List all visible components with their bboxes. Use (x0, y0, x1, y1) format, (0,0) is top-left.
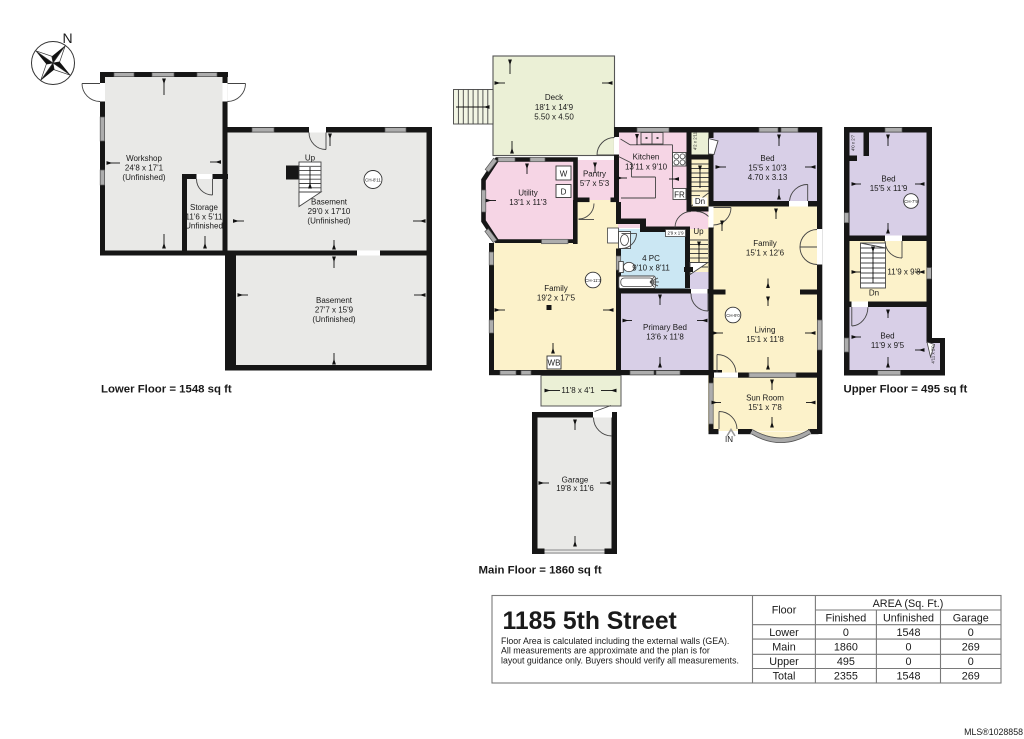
svg-text:Upper Floor = 495 sq ft: Upper Floor = 495 sq ft (844, 384, 968, 396)
svg-text:0: 0 (905, 642, 911, 654)
svg-text:29'0 x 17'10: 29'0 x 17'10 (308, 207, 351, 216)
svg-text:Garage: Garage (953, 612, 989, 624)
svg-text:5'7 x 5'3: 5'7 x 5'3 (580, 179, 610, 188)
svg-text:19'8 x 11'6: 19'8 x 11'6 (556, 484, 594, 493)
svg-text:4'11 x 2'0: 4'11 x 2'0 (931, 345, 936, 364)
svg-text:Lower Floor = 1548 sq ft: Lower Floor = 1548 sq ft (101, 384, 232, 396)
svg-text:1860: 1860 (834, 642, 858, 654)
svg-text:27'7 x 15'9: 27'7 x 15'9 (315, 306, 354, 315)
svg-text:11'8 x 4'1: 11'8 x 4'1 (561, 386, 595, 395)
svg-text:CH-8'11: CH-8'11 (365, 177, 381, 182)
svg-text:Family: Family (753, 239, 777, 248)
svg-text:CH-11'3: CH-11'3 (585, 278, 601, 283)
svg-text:Main: Main (772, 642, 795, 654)
svg-text:1548: 1548 (896, 627, 920, 639)
svg-text:D: D (561, 188, 567, 197)
svg-text:4.70 x 3.13: 4.70 x 3.13 (748, 173, 788, 182)
svg-text:4'0 x 2'7: 4'0 x 2'7 (851, 134, 856, 151)
svg-text:1548: 1548 (896, 671, 920, 683)
svg-text:11'6 x 5'11: 11'6 x 5'11 (185, 213, 223, 222)
svg-text:AREA (Sq. Ft.): AREA (Sq. Ft.) (873, 598, 944, 610)
svg-text:Dn: Dn (695, 197, 705, 206)
svg-text:Unfinished: Unfinished (883, 612, 934, 624)
svg-text:Basement: Basement (311, 198, 348, 207)
svg-text:(Unfinished): (Unfinished) (312, 315, 355, 324)
svg-text:Total: Total (773, 671, 796, 683)
svg-text:Sun Room: Sun Room (746, 394, 784, 403)
svg-text:15'1 x 12'6: 15'1 x 12'6 (746, 249, 785, 258)
svg-text:Main Floor = 1860 sq ft: Main Floor = 1860 sq ft (479, 564, 602, 576)
svg-text:Dn: Dn (869, 289, 879, 298)
svg-text:2355: 2355 (834, 671, 858, 683)
svg-text:IN: IN (725, 435, 733, 444)
svg-text:Up: Up (305, 154, 316, 163)
svg-text:FR: FR (674, 191, 685, 200)
svg-text:0: 0 (843, 627, 849, 639)
svg-text:Pantry: Pantry (583, 170, 606, 179)
svg-text:269: 269 (962, 671, 980, 683)
svg-text:WB: WB (548, 359, 561, 368)
svg-text:CH-9'0: CH-9'0 (726, 313, 740, 318)
svg-text:Floor: Floor (772, 605, 797, 617)
svg-text:Up: Up (693, 227, 704, 236)
svg-text:15'1 x 7'8: 15'1 x 7'8 (748, 403, 782, 412)
svg-text:5.50 x 4.50: 5.50 x 4.50 (534, 113, 574, 122)
svg-text:Utility: Utility (518, 189, 538, 198)
svg-text:15'5 x 11'9: 15'5 x 11'9 (870, 184, 908, 193)
svg-text:0: 0 (968, 656, 974, 668)
svg-text:15'5 x 10'3: 15'5 x 10'3 (748, 164, 787, 173)
svg-text:4'2 x 2'11: 4'2 x 2'11 (693, 131, 698, 150)
svg-text:Upper: Upper (769, 656, 799, 668)
svg-text:Bed: Bed (760, 154, 774, 163)
svg-text:15'1 x 11'8: 15'1 x 11'8 (746, 335, 784, 344)
svg-text:11'9 x 9'5: 11'9 x 9'5 (871, 341, 905, 350)
svg-text:269: 269 (962, 642, 980, 654)
svg-text:Primary Bed: Primary Bed (643, 323, 687, 332)
svg-text:(Unfinished): (Unfinished) (182, 222, 225, 231)
svg-text:Living: Living (755, 326, 776, 335)
svg-text:0: 0 (968, 627, 974, 639)
svg-text:2'9 x 1'9: 2'9 x 1'9 (667, 230, 684, 235)
svg-text:24'8 x 17'1: 24'8 x 17'1 (125, 164, 164, 173)
svg-text:Family: Family (544, 284, 568, 293)
svg-text:13'6 x 11'8: 13'6 x 11'8 (646, 333, 684, 342)
svg-text:Deck: Deck (545, 93, 564, 102)
svg-text:18'1 x 14'9: 18'1 x 14'9 (535, 103, 574, 112)
svg-text:495: 495 (837, 656, 855, 668)
svg-text:N: N (62, 30, 72, 46)
svg-text:Finished: Finished (825, 612, 866, 624)
svg-text:19'2 x 17'5: 19'2 x 17'5 (537, 294, 576, 303)
svg-text:Bed: Bed (880, 332, 894, 341)
svg-text:13'11 x 9'10: 13'11 x 9'10 (625, 163, 668, 172)
svg-text:13'1 x 11'3: 13'1 x 11'3 (509, 198, 547, 207)
svg-text:Kitchen: Kitchen (633, 153, 660, 162)
svg-text:(Unfinished): (Unfinished) (307, 217, 350, 226)
svg-text:MLS®1028858: MLS®1028858 (964, 727, 1023, 737)
svg-text:CH-7'9: CH-7'9 (904, 199, 918, 204)
svg-text:Floor Area is calculated inclu: Floor Area is calculated including the e… (501, 636, 729, 646)
svg-text:layout guidance only. Buyers s: layout guidance only. Buyers should veri… (501, 655, 739, 665)
svg-text:Storage: Storage (190, 203, 219, 212)
svg-text:4 PC: 4 PC (642, 254, 660, 263)
svg-text:(Unfinished): (Unfinished) (122, 173, 165, 182)
svg-text:W: W (560, 170, 568, 179)
svg-text:9'10 x 8'11: 9'10 x 8'11 (632, 264, 670, 273)
svg-text:0: 0 (905, 656, 911, 668)
svg-text:Basement: Basement (316, 296, 353, 305)
svg-text:Workshop: Workshop (126, 154, 162, 163)
svg-text:1185 5th Street: 1185 5th Street (503, 608, 677, 635)
svg-text:Lower: Lower (769, 627, 799, 639)
svg-text:All measurements are approxima: All measurements are approximate and the… (501, 646, 710, 656)
svg-text:Bed: Bed (881, 175, 895, 184)
